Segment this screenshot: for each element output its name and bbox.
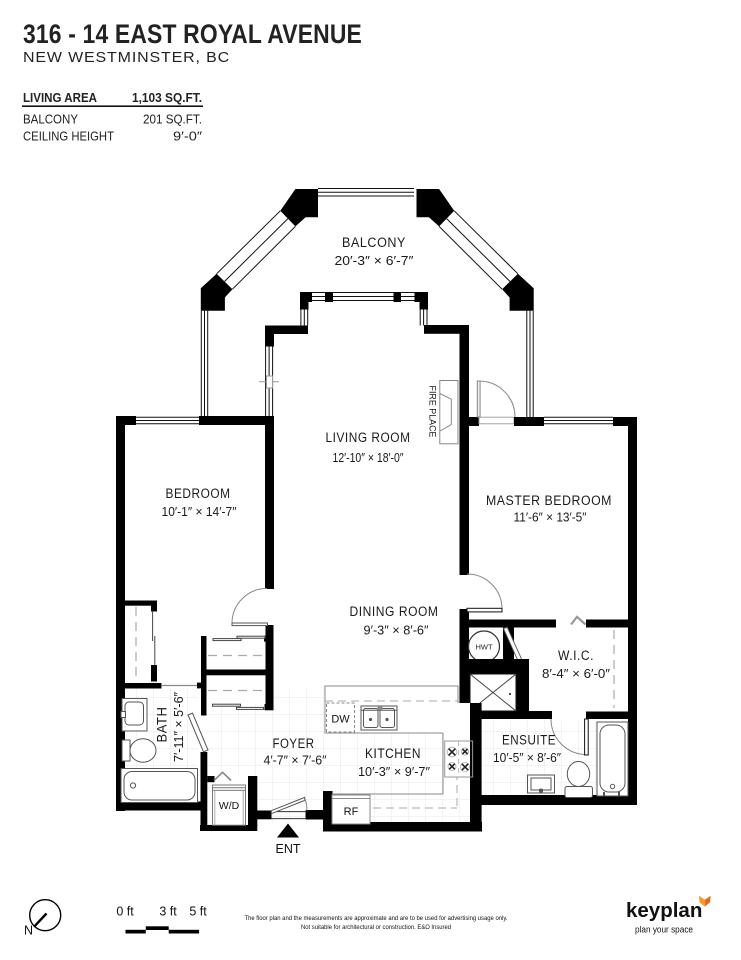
svg-text:Not suitable for architectural: Not suitable for architectural or constr… [301,924,451,931]
svg-text:DINING ROOM: DINING ROOM [350,604,439,619]
svg-text:HWT: HWT [475,643,492,652]
svg-text:LIVING ROOM: LIVING ROOM [326,430,411,445]
svg-text:KITCHEN: KITCHEN [365,746,421,761]
svg-text:W/D: W/D [219,800,240,812]
svg-text:0 ft: 0 ft [116,905,134,919]
svg-text:9′-3″ × 8′-6″: 9′-3″ × 8′-6″ [364,624,430,638]
svg-text:plan your space: plan your space [635,924,693,934]
svg-text:N: N [24,924,33,938]
svg-text:12′-10″ × 18′-0″: 12′-10″ × 18′-0″ [333,451,404,465]
svg-text:4′-7″ × 7′-6″: 4′-7″ × 7′-6″ [264,754,328,768]
svg-text:316 - 14 EAST ROYAL AVENUE: 316 - 14 EAST ROYAL AVENUE [23,19,362,49]
svg-text:11′-6″ × 13′-5″: 11′-6″ × 13′-5″ [514,511,588,525]
svg-text:8′-4″ × 6′-0″: 8′-4″ × 6′-0″ [542,667,611,681]
svg-text:ENSUITE: ENSUITE [502,733,556,748]
svg-text:7′-11″ × 5′-6″: 7′-11″ × 5′-6″ [172,691,186,762]
svg-text:BEDROOM: BEDROOM [166,486,231,501]
svg-text:BATH: BATH [155,707,170,743]
svg-text:ENT: ENT [276,842,301,856]
svg-text:W.I.C.: W.I.C. [558,648,594,663]
svg-text:10′-1″ × 14′-7″: 10′-1″ × 14′-7″ [162,505,238,519]
svg-text:keyplan: keyplan [626,899,702,922]
svg-text:9′-0″: 9′-0″ [173,129,202,144]
svg-text:3 ft: 3 ft [159,905,177,919]
svg-text:BALCONY: BALCONY [23,112,78,127]
svg-text:201 SQ.FT.: 201 SQ.FT. [143,112,202,127]
svg-text:RF: RF [344,806,359,818]
svg-text:NEW WESTMINSTER, BC: NEW WESTMINSTER, BC [23,49,230,66]
svg-text:MASTER BEDROOM: MASTER BEDROOM [486,493,612,508]
svg-text:1,103 SQ.FT.: 1,103 SQ.FT. [132,90,202,105]
svg-text:FOYER: FOYER [273,736,315,751]
svg-text:CEILING HEIGHT: CEILING HEIGHT [23,129,114,144]
svg-text:BALCONY: BALCONY [342,235,406,250]
svg-text:FIRE PLACE: FIRE PLACE [427,386,438,438]
svg-text:20′-3″ × 6′-7″: 20′-3″ × 6′-7″ [335,254,415,268]
svg-text:DW: DW [331,714,350,726]
svg-text:The floor plan and the measure: The floor plan and the measurements are … [245,915,508,922]
svg-text:LIVING AREA: LIVING AREA [23,90,98,105]
svg-text:5 ft: 5 ft [189,905,207,919]
svg-text:10′-5″ × 8′-6″: 10′-5″ × 8′-6″ [493,751,562,765]
svg-text:10′-3″ × 9′-7″: 10′-3″ × 9′-7″ [358,765,431,779]
